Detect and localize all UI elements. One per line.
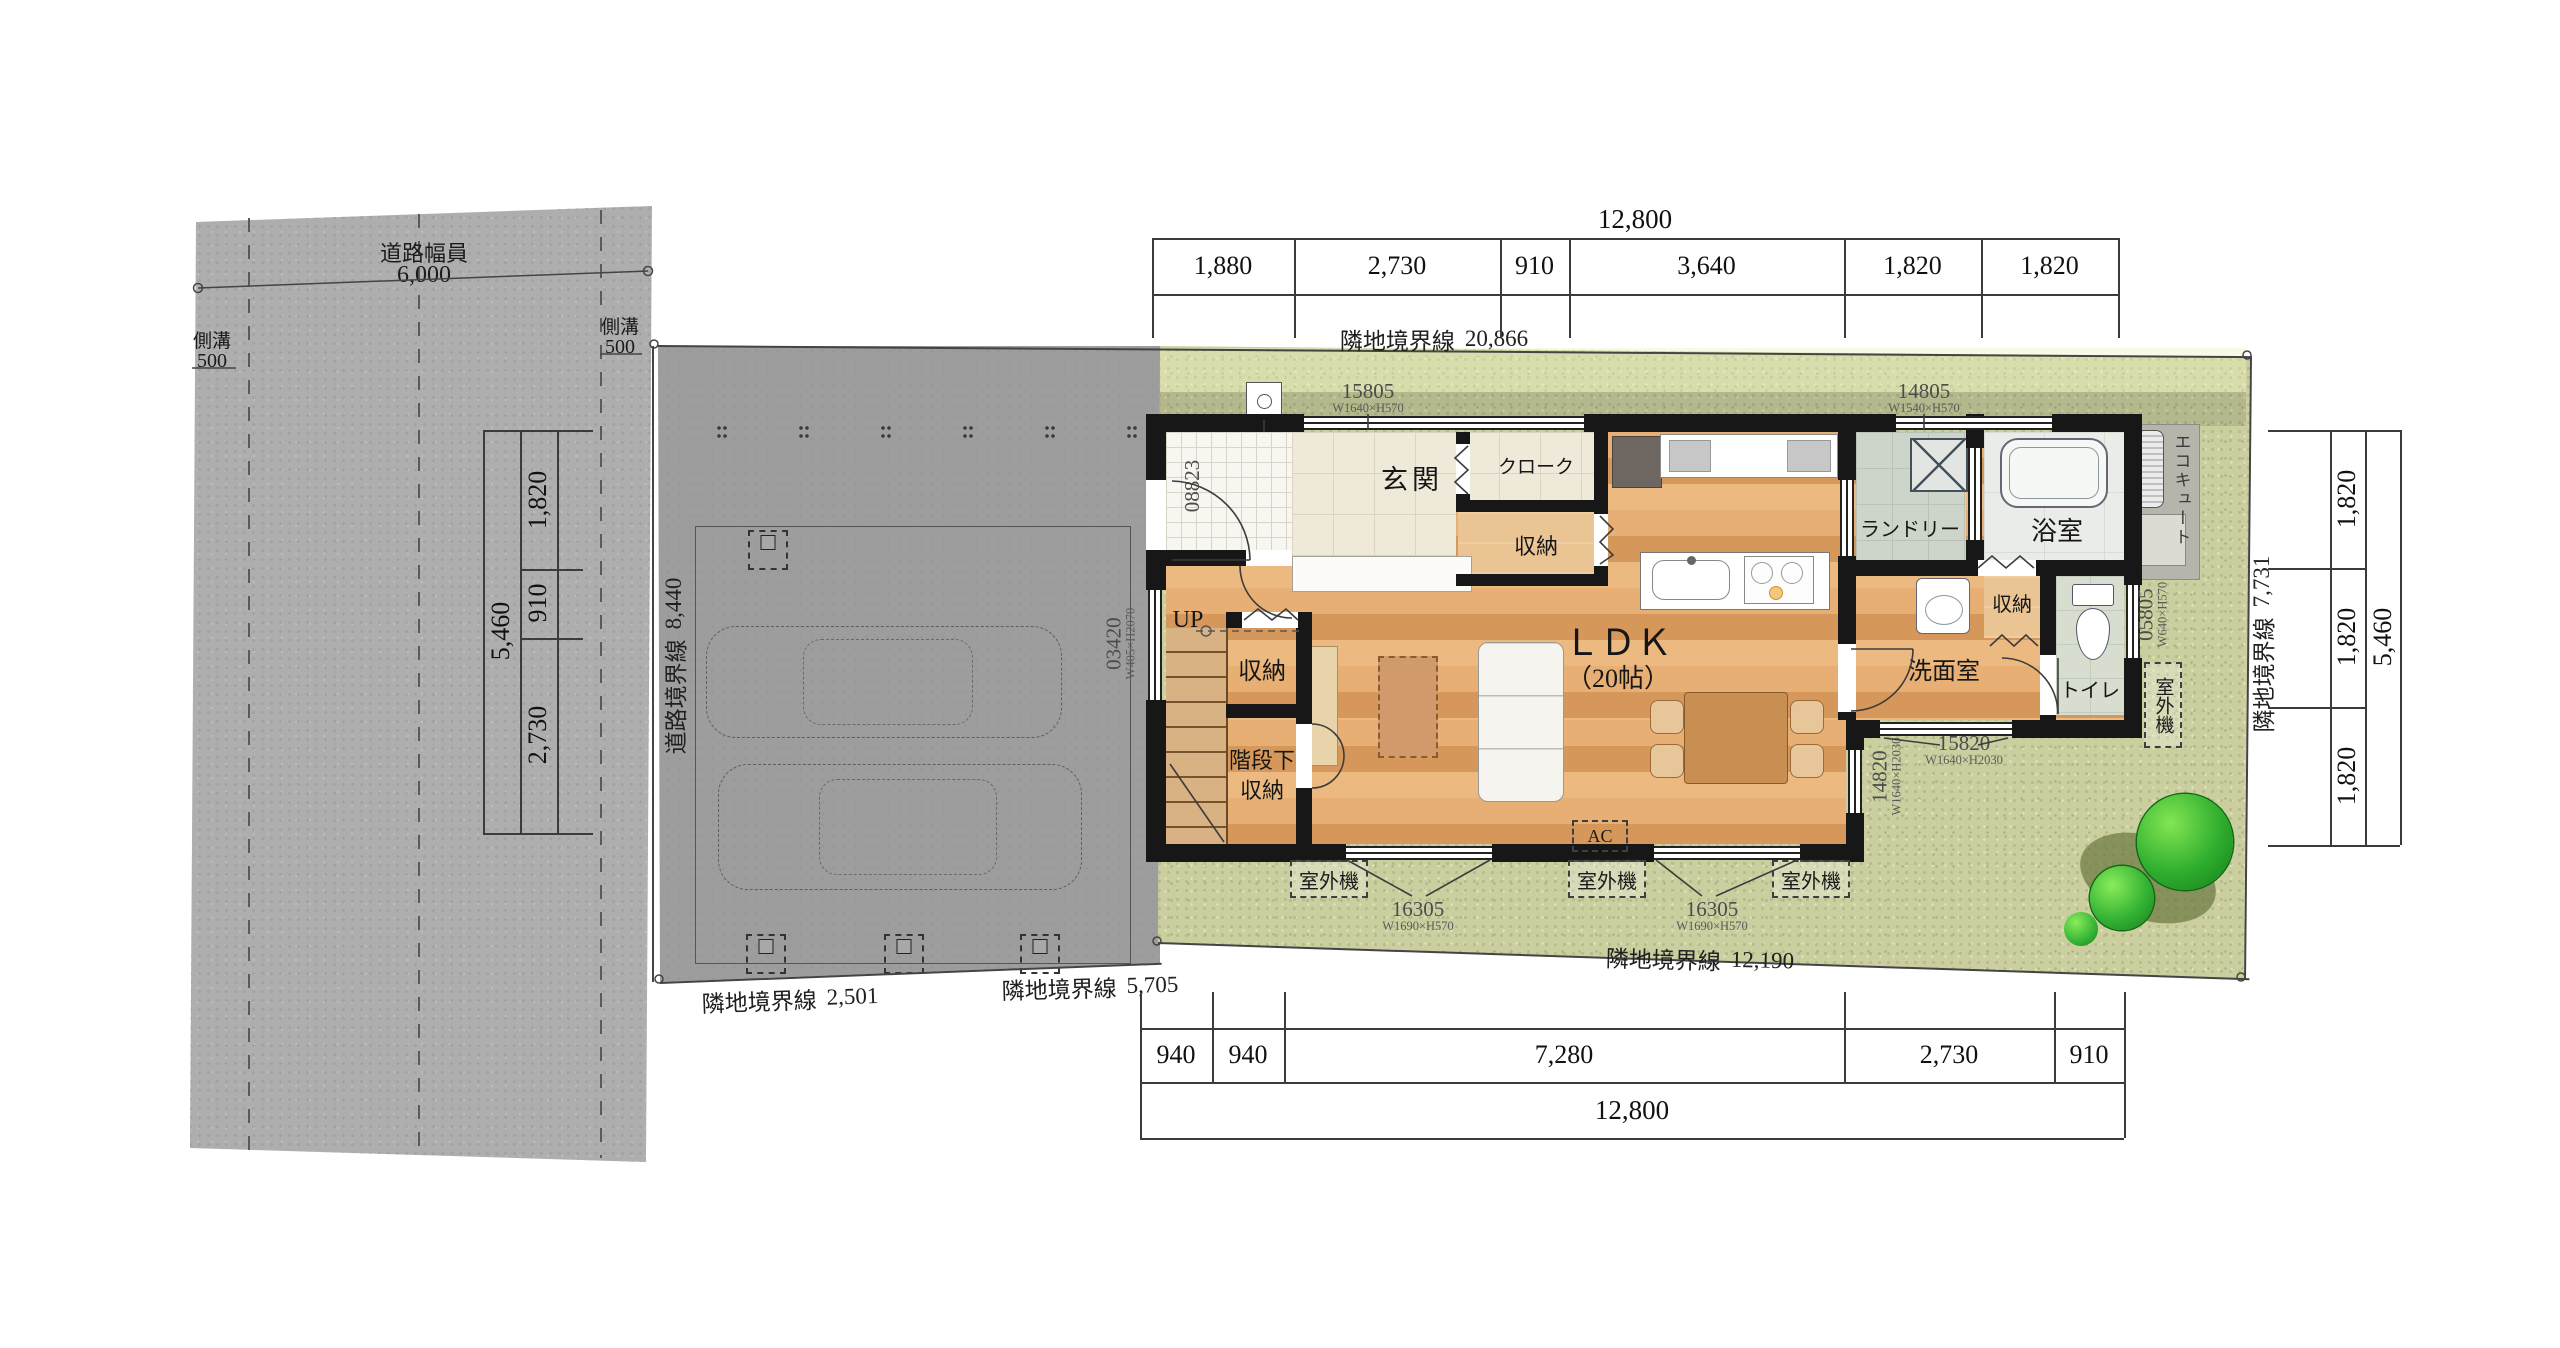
post-marker xyxy=(748,530,788,570)
opening-label-16305-b: 16305W1690×H570 xyxy=(1642,898,1782,933)
outdoor-unit-box: 室外機 xyxy=(1772,860,1850,898)
dim-bottom-total: 12,800 xyxy=(1140,1082,2124,1138)
tree-icon-small xyxy=(2064,912,2098,946)
room-label-stair-storage-2: 収納 xyxy=(1218,776,1306,802)
room-label-entrance: 玄関 xyxy=(1352,462,1472,492)
opening-label-15805: 15805W1640×H570 xyxy=(1298,380,1438,415)
dining-chair xyxy=(1650,700,1684,734)
dim-top-seg3: 3,640 xyxy=(1569,238,1844,294)
road-area xyxy=(186,204,656,1164)
opening-label-15820: 15820W1640×H2030 xyxy=(1894,732,2034,767)
dining-table xyxy=(1684,692,1788,784)
room-label-storage-a: 収納 xyxy=(1486,532,1586,558)
dining-chair xyxy=(1790,700,1824,734)
fence-mark-icon xyxy=(1126,424,1138,441)
window-15805 xyxy=(1304,416,1584,430)
fence-mark-icon xyxy=(962,424,974,441)
room-label-bath: 浴室 xyxy=(2002,514,2112,544)
dim-right-seg0: 1,820 xyxy=(2334,439,2360,559)
dim-top-seg2: 910 xyxy=(1500,238,1569,294)
boundary-label-road: 道路境界線8,440 xyxy=(657,536,691,796)
dim-top-seg1: 2,730 xyxy=(1294,238,1500,294)
boundary-line-road xyxy=(652,346,654,982)
fence-mark-icon xyxy=(1044,424,1056,441)
pantry-unit xyxy=(1612,436,1662,488)
appliance-icon xyxy=(1787,440,1831,472)
washroom-door-opening xyxy=(1838,644,1856,712)
dim-top-seg0: 1,880 xyxy=(1152,238,1294,294)
opening-label-16305-a: 16305W1690×H570 xyxy=(1348,898,1488,933)
dim-left-seg2: 2,730 xyxy=(525,675,551,795)
opening-label-14805: 14805W1540×H570 xyxy=(1854,380,1994,415)
room-label-ldk-size: （20帖） xyxy=(1528,660,1708,692)
boundary-label-bottom: 隣地境界線12,190 xyxy=(1560,938,1841,979)
opening-label-03420: 03420W405×H2070 xyxy=(1102,584,1137,704)
car-outline xyxy=(706,626,1062,738)
opening-label-14820: 14820W1640×H2030 xyxy=(1868,712,1903,842)
entrance-step xyxy=(1292,556,1472,592)
kitchen-sink-icon xyxy=(1652,560,1730,600)
bathtub-icon xyxy=(2000,438,2108,508)
dim-bottom-seg3: 2,730 xyxy=(1844,1028,2054,1082)
room-label-ldk: ＬＤＫ xyxy=(1528,620,1708,660)
road-width-value: 6,000 xyxy=(344,262,504,289)
dim-top-seg5: 1,820 xyxy=(1981,238,2118,294)
parking-pad-outline xyxy=(695,526,1131,964)
room-label-cloak: クローク xyxy=(1466,452,1606,478)
fence-mark-icon xyxy=(798,424,810,441)
road-gutter-line-left xyxy=(248,218,250,1152)
dim-bottom-seg0: 940 xyxy=(1140,1028,1212,1082)
outdoor-unit-box: 室外機 xyxy=(1568,860,1646,898)
room-label-toilet: トイレ xyxy=(2050,676,2130,700)
site-plan-canvas: 道路幅員 6,000 側溝 500 側溝 500 5,460 1,820 910… xyxy=(0,0,2560,1348)
dim-left-seg0: 1,820 xyxy=(525,440,551,560)
boundary-label-right: 隣地境界線7,731 xyxy=(2245,514,2279,774)
dining-chair xyxy=(1790,744,1824,778)
gutter-right-value: 500 xyxy=(590,336,650,359)
door-14820 xyxy=(1848,750,1862,813)
gutter-right-label: 側溝 xyxy=(590,312,650,339)
tree-icon-large xyxy=(2137,794,2233,890)
stairs xyxy=(1166,628,1226,844)
room-label-stair-storage-1: 階段下 xyxy=(1218,746,1306,772)
dim-bottom-seg4: 910 xyxy=(2054,1028,2124,1082)
dim-bottom-seg1: 940 xyxy=(1212,1028,1284,1082)
dim-top-seg4: 1,820 xyxy=(1844,238,1981,294)
room-label-storage-b: 収納 xyxy=(1218,654,1306,682)
window-16305-a xyxy=(1346,846,1492,860)
boundary-label-southwest: 隣地境界線2,501 xyxy=(659,977,920,1020)
dim-top-total: 12,800 xyxy=(1152,202,2118,236)
boundary-label-south: 隣地境界線5,705 xyxy=(960,967,1221,1008)
window-16305-b xyxy=(1654,846,1800,860)
opening-label-08823: 08823 xyxy=(1181,431,1203,541)
ac-unit-box: AC xyxy=(1572,820,1628,852)
fence-mark-icon xyxy=(716,424,728,441)
dim-right-seg2: 1,820 xyxy=(2334,716,2360,836)
storage-a-opening xyxy=(1594,514,1608,566)
stove-icon xyxy=(1744,556,1814,604)
washbasin-icon xyxy=(1916,578,1970,634)
dining-chair xyxy=(1650,744,1684,778)
dim-left-seg1: 910 xyxy=(525,543,551,663)
dim-right-total: 5,460 xyxy=(2370,577,2396,697)
post-marker xyxy=(746,934,786,974)
kitchen-back-counter xyxy=(1660,434,1838,478)
room-label-up: UP xyxy=(1160,606,1216,634)
appliance-icon xyxy=(1669,440,1711,472)
gutter-left-label: 側溝 xyxy=(182,326,242,353)
post-marker xyxy=(884,934,924,974)
opening-label-05805: 05805W640×H570 xyxy=(2134,550,2169,680)
toilet-tank-icon xyxy=(2072,584,2114,606)
storage-b-opening xyxy=(1242,612,1298,628)
rug xyxy=(1378,656,1438,758)
porch-hall-opening xyxy=(1246,550,1292,566)
road-center-line xyxy=(418,214,420,1154)
gutter-left-value: 500 xyxy=(182,350,242,373)
washer-pan-icon xyxy=(1910,438,1968,492)
fence-mark-icon xyxy=(880,424,892,441)
outdoor-unit-box: 室外機 xyxy=(1290,860,1368,898)
dim-right-seg1: 1,820 xyxy=(2334,577,2360,697)
boundary-label-top: 隣地境界線20,866 xyxy=(1294,322,1574,356)
dim-bottom-seg2: 7,280 xyxy=(1284,1028,1844,1082)
ecocute-label: エコキュート xyxy=(2168,420,2194,560)
car-outline xyxy=(718,764,1082,890)
window-14805 xyxy=(1896,416,2052,430)
room-label-laundry: ランドリー xyxy=(1848,514,1972,540)
bath-door-opening xyxy=(1978,560,2036,576)
tree-icon-medium xyxy=(2090,866,2154,930)
dim-left-total: 5,460 xyxy=(488,571,514,691)
room-label-storage-c: 収納 xyxy=(1970,590,2054,614)
room-label-washroom: 洗面室 xyxy=(1884,654,2004,682)
